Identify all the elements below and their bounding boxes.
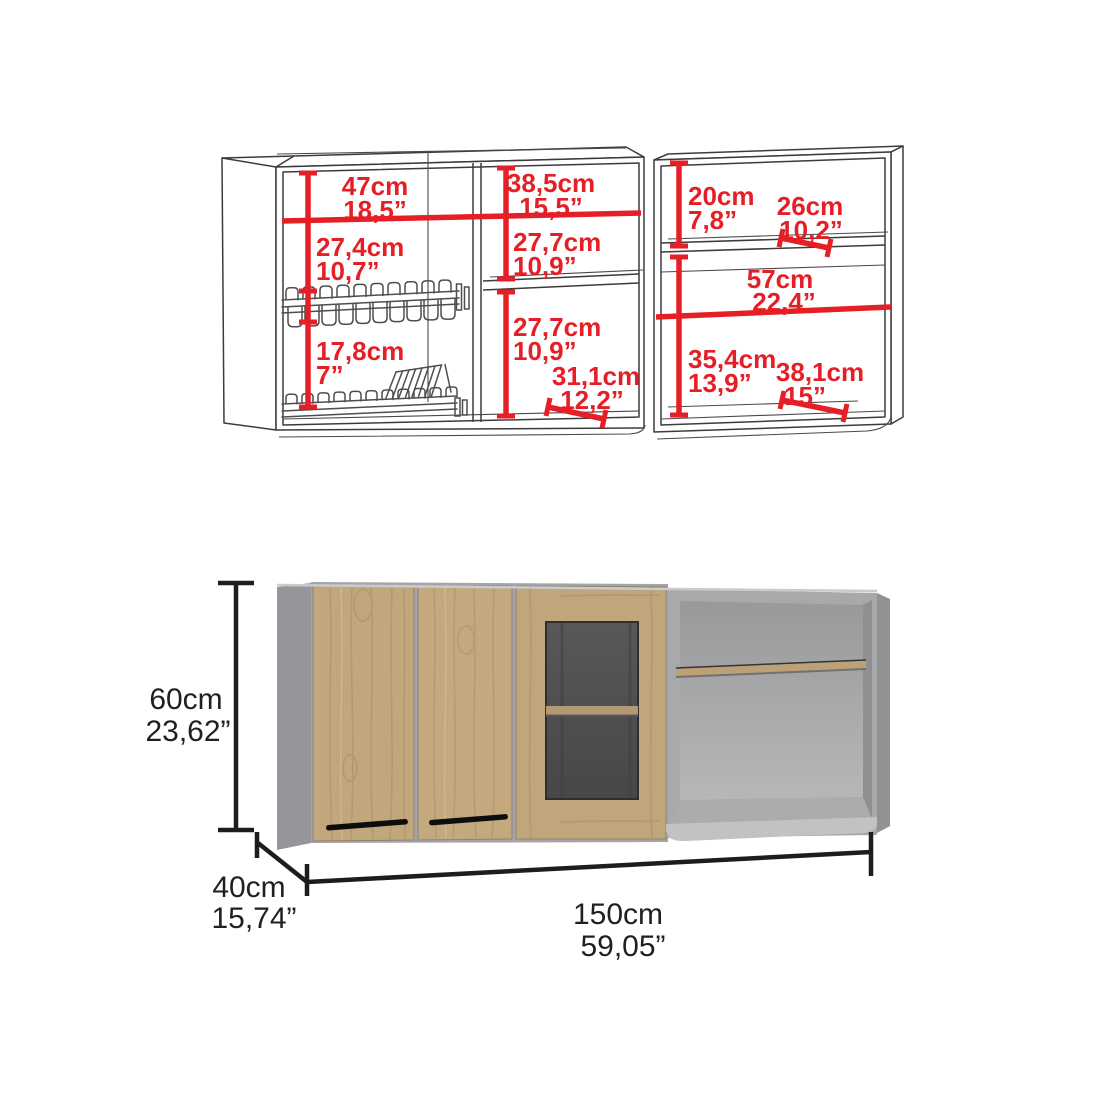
product-dimension-sheet: 47cm 18,5” 38,5cm 15,5” 27,4cm 10,7” 27,… bbox=[0, 0, 1100, 1100]
dim-lower-section-height-in: 13,9” bbox=[688, 368, 752, 398]
overall-depth-in: 15,74” bbox=[211, 902, 296, 935]
cabinet-left-side bbox=[277, 583, 311, 850]
cabinet-door-2 bbox=[418, 586, 512, 840]
cabinet-door-1 bbox=[313, 586, 414, 841]
overall-width-cm: 150cm bbox=[573, 898, 663, 931]
overall-height-cm: 60cm bbox=[149, 683, 222, 716]
glass-door-shelf bbox=[546, 706, 638, 716]
left-cabinet-side-panel bbox=[222, 158, 276, 430]
dim-upper-right-height-in: 10,9” bbox=[513, 251, 577, 281]
top-dimension-diagram: 47cm 18,5” 38,5cm 15,5” 27,4cm 10,7” 27,… bbox=[222, 146, 903, 439]
dim-left-interior-width-in: 18,5” bbox=[343, 195, 407, 225]
diagram-canvas: 47cm 18,5” 38,5cm 15,5” 27,4cm 10,7” 27,… bbox=[0, 0, 1100, 1100]
dim-bottom-depth-in: 15” bbox=[784, 381, 826, 411]
right-cabinet-side-panel bbox=[891, 146, 903, 424]
cabinet-glass-door bbox=[516, 586, 666, 839]
dim-left-depth-in: 12,2” bbox=[560, 385, 624, 415]
dim-rack-section-height-in: 7” bbox=[316, 360, 343, 390]
rendered-cabinet bbox=[277, 582, 890, 850]
cabinet-open-section bbox=[666, 589, 877, 841]
dim-right-interior-width-in: 22,4” bbox=[752, 287, 816, 317]
cabinet-right-side bbox=[877, 593, 890, 833]
open-section-back bbox=[680, 601, 863, 800]
overall-depth-cm: 40cm bbox=[212, 871, 285, 904]
overall-width-in: 59,05” bbox=[580, 930, 665, 963]
overall-height-in: 23,62” bbox=[145, 715, 230, 748]
open-section-right-wall bbox=[863, 600, 872, 826]
dim-top-offset-in: 7,8” bbox=[688, 205, 737, 235]
dim-upper-left-height-in: 10,7” bbox=[316, 256, 380, 286]
dim-shelf-depth-in: 10,2” bbox=[779, 215, 843, 245]
dim-right-section-width-in: 15,5” bbox=[519, 192, 583, 222]
